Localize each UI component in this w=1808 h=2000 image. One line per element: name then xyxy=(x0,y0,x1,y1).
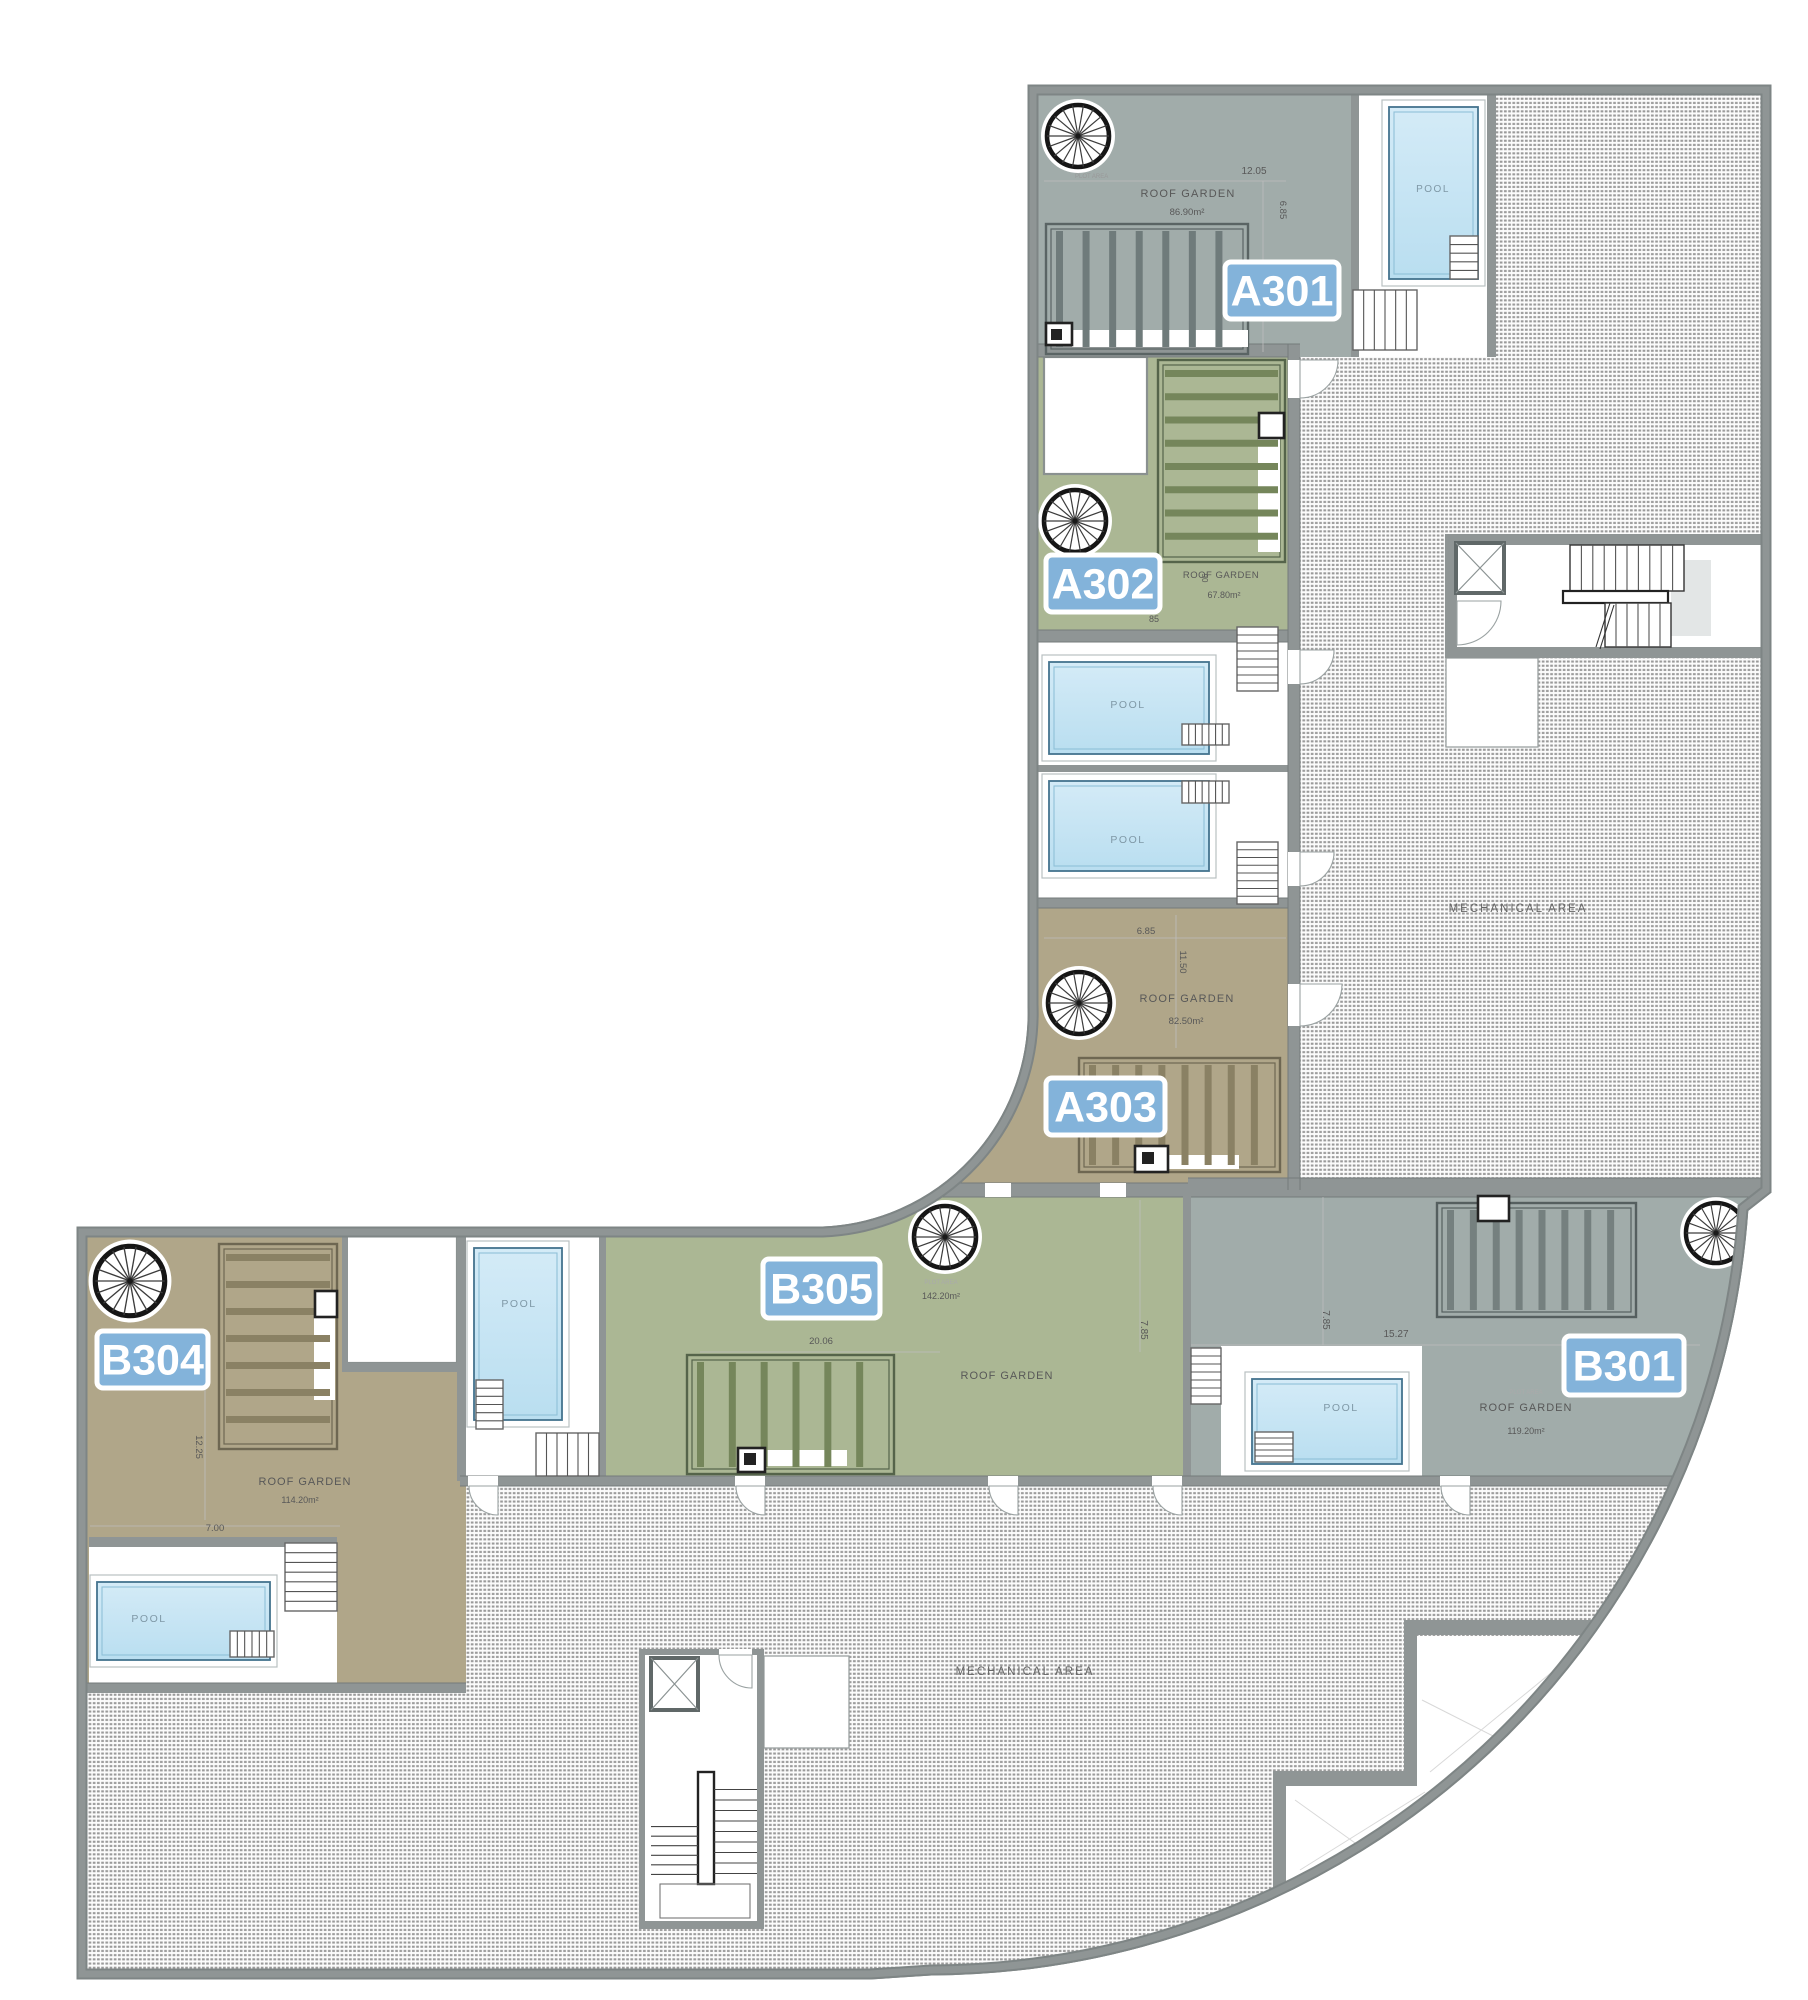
svg-text:119.20m²: 119.20m² xyxy=(1507,1426,1544,1436)
svg-text:90: 90 xyxy=(1200,574,1209,583)
svg-text:82.50m²: 82.50m² xyxy=(1169,1016,1204,1027)
svg-text:7.00: 7.00 xyxy=(206,1523,225,1534)
svg-text:85: 85 xyxy=(1149,614,1159,624)
svg-text:B301: B301 xyxy=(1573,1343,1676,1391)
svg-text:POOL: POOL xyxy=(1110,834,1145,846)
svg-text:POOL: POOL xyxy=(1416,184,1450,195)
svg-text:6.85: 6.85 xyxy=(1137,926,1156,937)
svg-text:ROOF GARDEN: ROOF GARDEN xyxy=(259,1476,352,1488)
svg-text:POOL: POOL xyxy=(1110,699,1145,711)
svg-text:ROOF GARDEN: ROOF GARDEN xyxy=(961,1370,1054,1382)
svg-text:B305: B305 xyxy=(770,1266,873,1314)
svg-text:12.05: 12.05 xyxy=(1241,166,1266,177)
svg-text:11.50: 11.50 xyxy=(1177,950,1188,973)
svg-text:7.85: 7.85 xyxy=(1320,1310,1331,1330)
svg-text:A301: A301 xyxy=(1231,268,1334,316)
svg-text:7.85: 7.85 xyxy=(1138,1320,1149,1340)
svg-text:PLOT AREA: PLOT AREA xyxy=(924,1280,957,1286)
svg-text:ROOF GARDEN: ROOF GARDEN xyxy=(1480,1402,1573,1414)
svg-text:A302: A302 xyxy=(1052,561,1155,609)
svg-text:ROOF GARDEN: ROOF GARDEN xyxy=(1139,993,1234,1005)
svg-text:6.85: 6.85 xyxy=(1277,201,1288,220)
svg-text:86.90m²: 86.90m² xyxy=(1170,207,1205,218)
svg-text:ROOF GARDEN: ROOF GARDEN xyxy=(1183,570,1259,581)
svg-text:20.06: 20.06 xyxy=(809,1336,833,1347)
svg-text:67.80m²: 67.80m² xyxy=(1207,590,1240,600)
svg-text:POOL: POOL xyxy=(131,1613,166,1625)
svg-text:PLOT AREA: PLOT AREA xyxy=(1075,174,1108,180)
svg-text:MECHANICAL AREA: MECHANICAL AREA xyxy=(956,1666,1095,1678)
svg-text:A303: A303 xyxy=(1054,1084,1157,1132)
svg-text:B304: B304 xyxy=(101,1337,204,1385)
svg-text:POOL: POOL xyxy=(501,1298,536,1310)
svg-text:12.25: 12.25 xyxy=(193,1435,204,1459)
svg-text:15.27: 15.27 xyxy=(1383,1329,1408,1340)
svg-text:114.20m²: 114.20m² xyxy=(281,1495,318,1505)
svg-text:POOL: POOL xyxy=(1323,1402,1358,1414)
svg-text:ROOF GARDEN: ROOF GARDEN xyxy=(1140,188,1235,200)
svg-text:MECHANICAL AREA: MECHANICAL AREA xyxy=(1449,903,1588,915)
svg-text:142.20m²: 142.20m² xyxy=(922,1291,960,1301)
svg-text:PLOT AREA: PLOT AREA xyxy=(1509,1390,1542,1396)
